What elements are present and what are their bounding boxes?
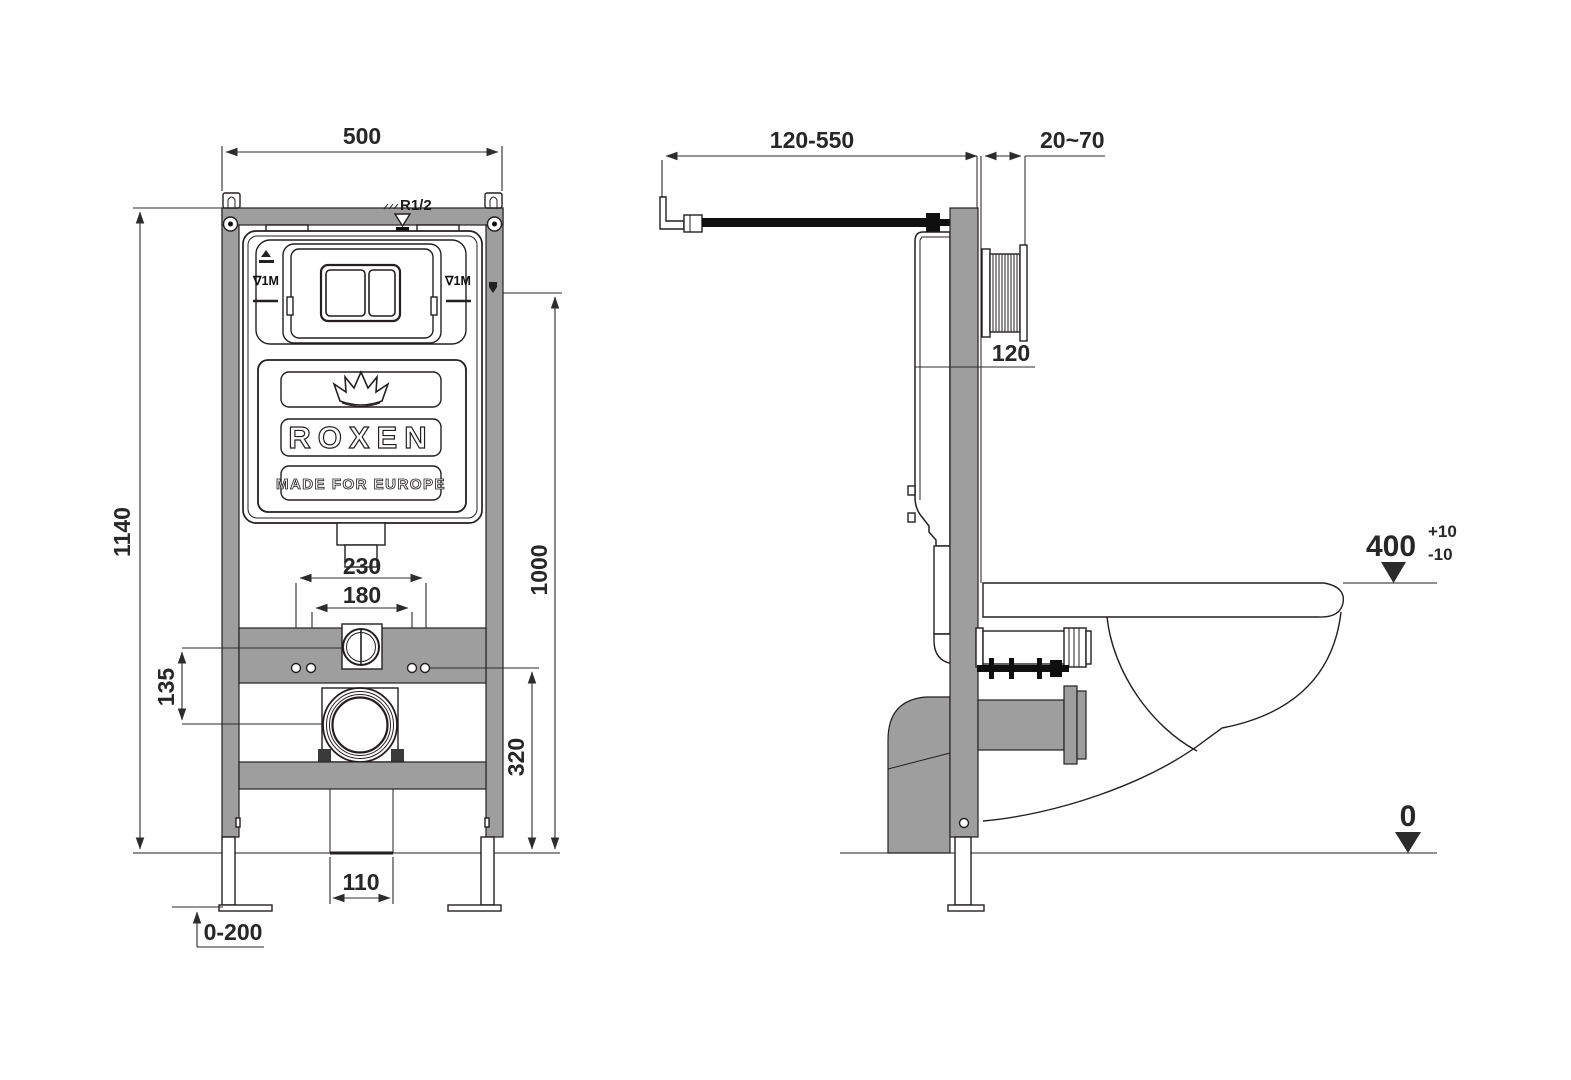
stud-hole — [307, 664, 316, 673]
brand-tagline-text: MADE FOR EUROPE — [276, 476, 446, 493]
frame-lower-bar — [239, 762, 486, 789]
frame-right-rail — [486, 208, 503, 837]
drain-bracket-left — [318, 749, 331, 762]
bowl-inner-curve — [1107, 617, 1197, 751]
hanger-hook-right — [485, 193, 502, 208]
flush-housing — [982, 245, 1027, 341]
connector-pipe — [983, 631, 1065, 664]
leg-side — [955, 837, 971, 905]
dim-inlet-to-drain-label: 135 — [153, 668, 179, 707]
connector-cap — [976, 628, 983, 667]
housing-flange-right — [1020, 245, 1027, 341]
dim-mark-height-label: 1000 — [526, 544, 552, 595]
flush-connector — [976, 628, 1091, 679]
rail-tab-right — [485, 818, 489, 827]
dim-stud-outer-label: 230 — [343, 553, 381, 579]
rail-tab-left — [236, 818, 240, 827]
flush-button-small — [369, 270, 395, 316]
flush-down-pipe — [934, 546, 950, 634]
plate-clip-left — [287, 297, 293, 315]
foot-plate-side — [948, 905, 984, 911]
screw-left — [224, 217, 238, 231]
dim-frame-width: 500 — [222, 123, 502, 191]
stud-nut — [1050, 660, 1062, 677]
dim-floor-level-label: 0 — [1400, 800, 1417, 833]
dim-frame-height: 1140 — [109, 208, 222, 849]
dim-outlet-width-label: 110 — [342, 869, 379, 895]
dim-wall-thickness-label: 20~70 — [1040, 127, 1105, 153]
screw-right — [488, 217, 502, 231]
drain-connector — [978, 686, 1086, 764]
front-view: 1140 500 — [109, 123, 562, 947]
rod-stub — [940, 219, 951, 226]
level-triangle-icon — [1381, 562, 1406, 583]
right-foot-plate — [448, 905, 501, 911]
left-foot-plate — [219, 905, 272, 911]
bar-hole — [960, 819, 969, 828]
drain-flange-cap — [1077, 691, 1086, 759]
connector-end — [1086, 631, 1091, 664]
plate-clip-right — [431, 297, 437, 315]
frame-bar-side — [950, 208, 978, 837]
stud-pin — [989, 658, 994, 679]
supply-rod-bar — [702, 218, 926, 227]
stud-hole — [408, 664, 417, 673]
brand-plate: ROXEN MADE FOR EUROPE — [258, 360, 466, 512]
connector-thread — [1064, 628, 1086, 667]
drain-flange — [1064, 686, 1077, 764]
rod-block — [926, 213, 940, 232]
drain-socket-outer — [323, 688, 397, 762]
mounting-crossbar — [239, 624, 486, 683]
left-leg — [222, 837, 235, 905]
level-mark-left-label: ∇1M — [252, 274, 279, 288]
level-triangle-icon — [1395, 832, 1421, 853]
dim-supply-length-label: 120-550 — [770, 127, 854, 153]
flush-button-large — [326, 270, 365, 316]
cistern-neck — [337, 523, 385, 545]
installation-drawing: 1140 500 — [0, 0, 1571, 1080]
housing-flange-left — [982, 249, 990, 337]
angle-bracket — [660, 197, 684, 229]
dim-wall-thickness: 20~70 — [985, 127, 1105, 156]
installation-drawing-page: 1140 500 — [0, 0, 1571, 1080]
stud-hole — [421, 664, 430, 673]
frame-left-rail — [222, 208, 239, 837]
dim-frame-width-label: 500 — [343, 123, 381, 149]
dim-drain-height-label: 320 — [503, 738, 529, 776]
supply-rod — [660, 197, 951, 232]
rod-clamp — [684, 215, 702, 232]
flush-buttons — [321, 265, 400, 321]
stud-pin — [1009, 658, 1014, 679]
dim-cistern-depth-label: 120 — [992, 340, 1030, 366]
dim-leg-adjust-label: 0-200 — [204, 919, 263, 945]
stud-pin — [1037, 658, 1042, 679]
dim-stud-inner-label: 180 — [343, 582, 381, 608]
rim-height-marker: 400 +10 -10 — [1343, 522, 1457, 583]
dim-leg-adjust: 0-200 — [172, 907, 264, 947]
brand-logo-text: ROXEN — [288, 420, 433, 455]
drain-bracket-right — [391, 749, 404, 762]
cistern-tab — [908, 513, 915, 522]
cistern-tab — [908, 486, 915, 495]
dim-rim-tol-plus-label: +10 — [1428, 522, 1457, 541]
right-leg — [481, 837, 494, 905]
dim-frame-height-label: 1140 — [109, 507, 135, 557]
dim-rim-height-label: 400 — [1366, 530, 1416, 563]
dim-rim-tol-minus-label: -10 — [1428, 545, 1453, 564]
stud-hole — [292, 664, 301, 673]
dim-outlet-width: 110 — [330, 857, 393, 904]
drain-pipe — [978, 700, 1064, 750]
floor-level-marker: 0 — [1395, 800, 1421, 853]
side-view: 120-550 20~70 — [660, 127, 1457, 911]
frame-top-bar — [222, 208, 503, 225]
drain-assembly — [318, 688, 404, 762]
dim-inlet-thread-label: R1/2 — [400, 197, 432, 214]
cistern-front: ∇1M ∇1M ROXEN MADE FOR EUROPE — [243, 225, 482, 567]
bowl-rim — [983, 583, 1343, 617]
dim-supply-length: 120-550 — [662, 127, 977, 199]
hanger-hook-left — [223, 193, 240, 208]
level-mark-right-label: ∇1M — [444, 274, 471, 288]
